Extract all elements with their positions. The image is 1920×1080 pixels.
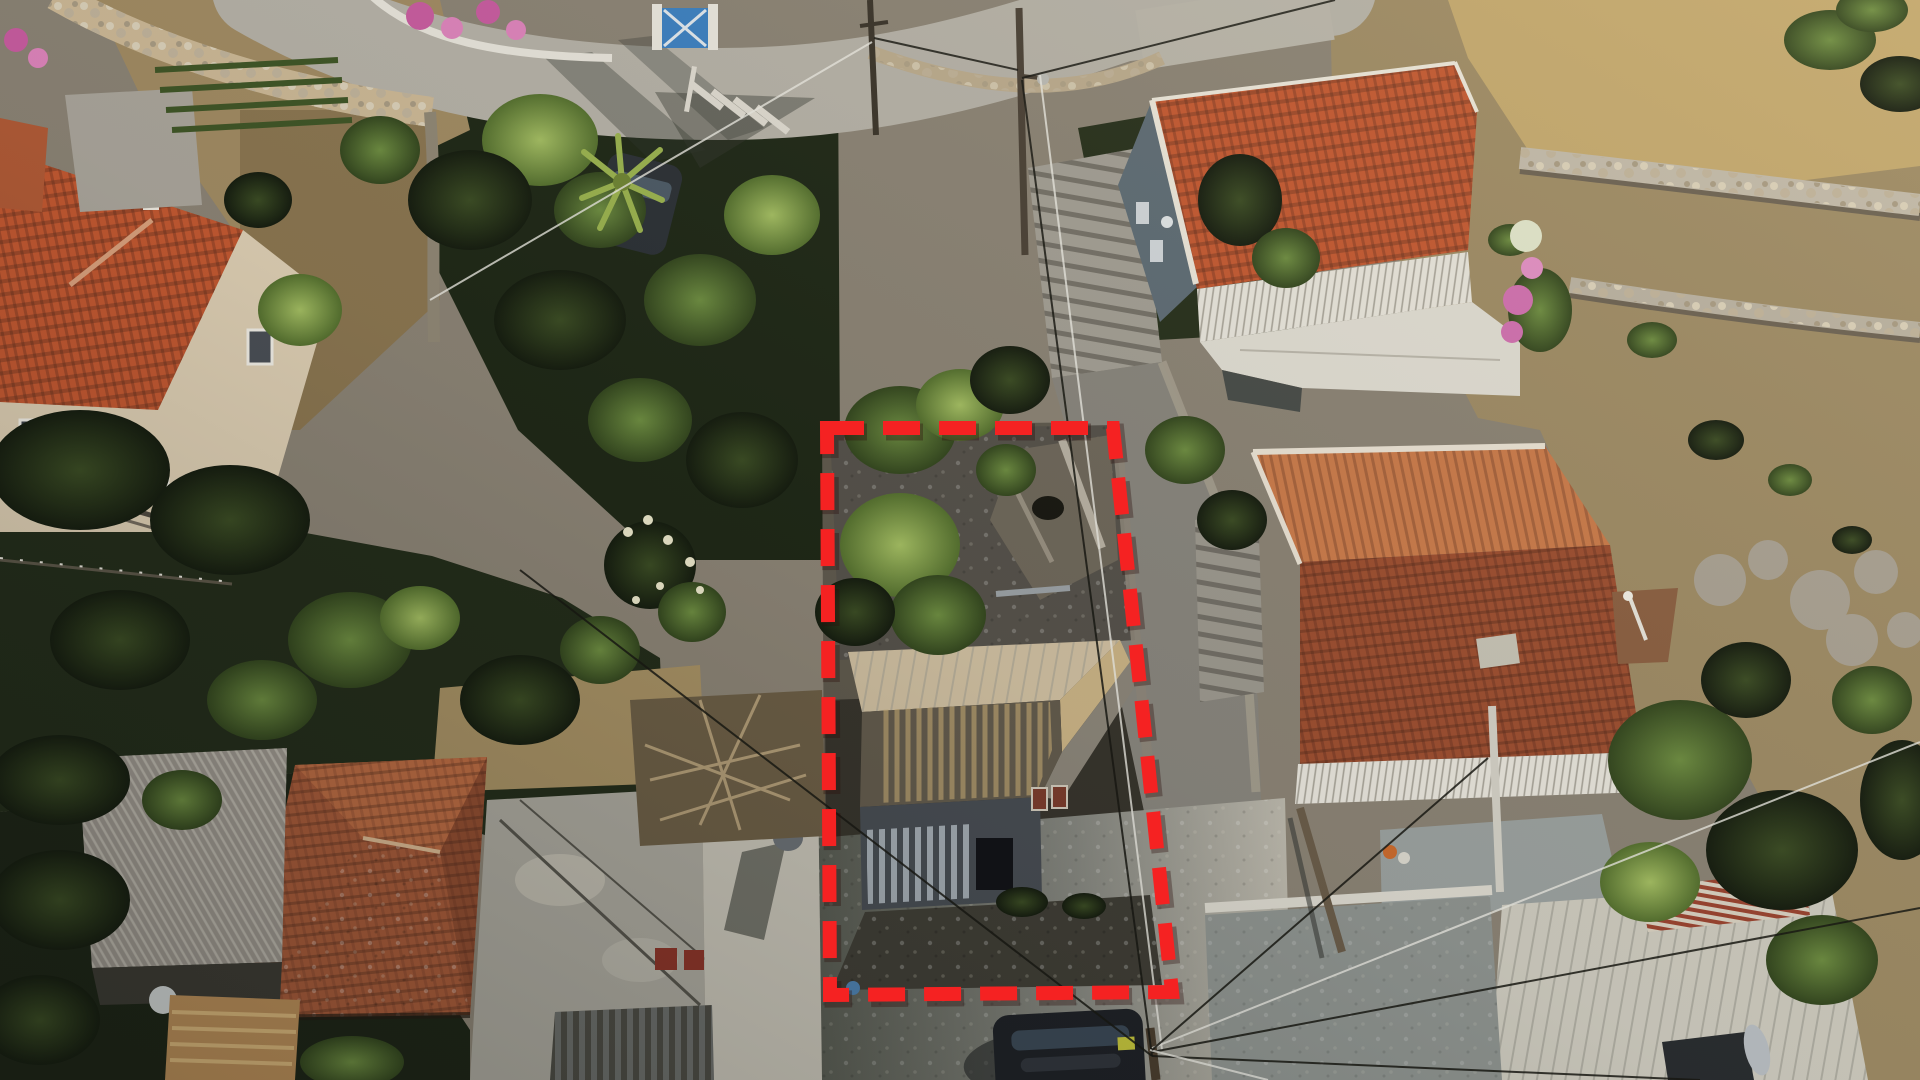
lighting-overlay xyxy=(0,0,1920,1080)
aerial-photo xyxy=(0,0,1920,1080)
